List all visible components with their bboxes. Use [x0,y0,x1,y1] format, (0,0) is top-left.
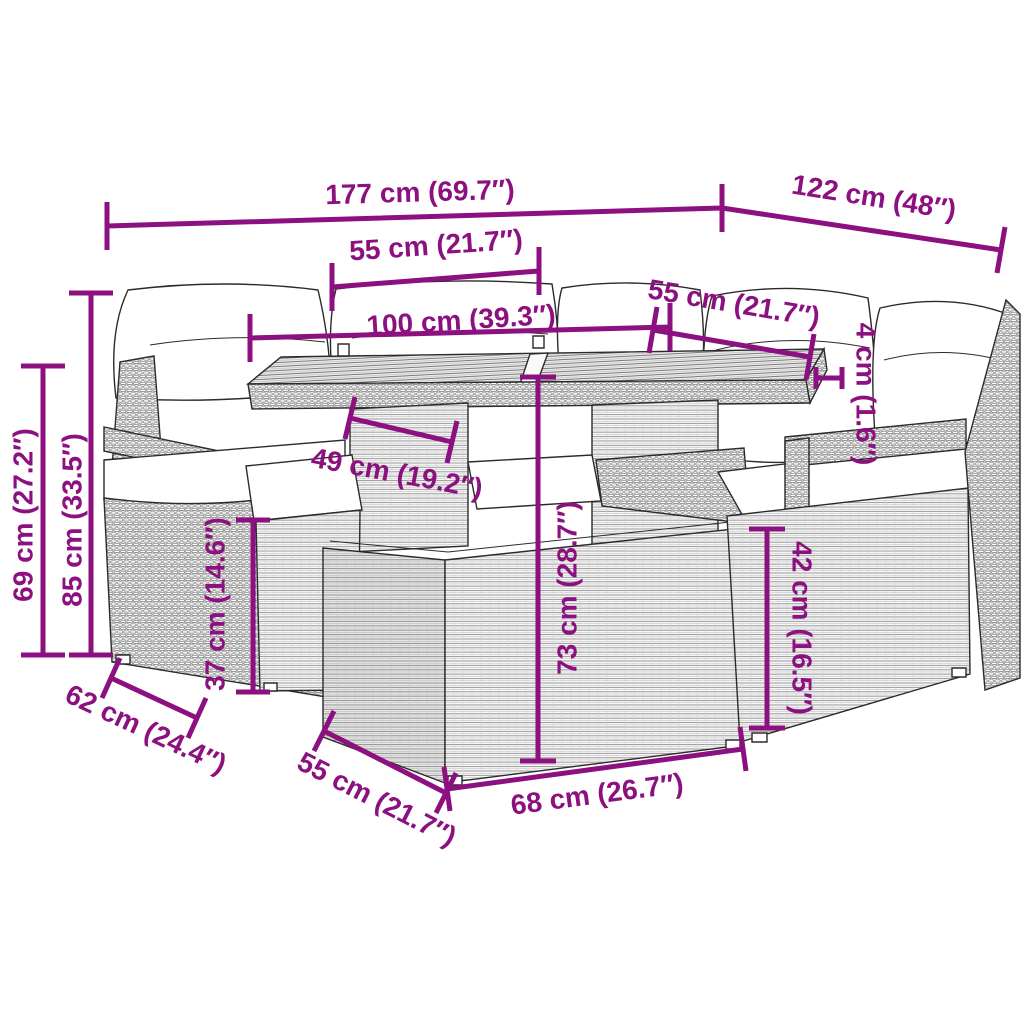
dimension-label-backrest-height: 85 cm (33.5″) [57,433,88,607]
dimension-label-sofa-seat-width: 55 cm (21.7″) [348,223,523,266]
armchair1-body [727,488,970,742]
footstool-front-face [445,528,743,783]
dimension-label-cushion-thickness: 4 cm (1.6″) [851,323,882,466]
armchair1-foot [752,733,767,742]
dimension-diagram: 177 cm (69.7″) 122 cm (48″) 55 cm (21.7″… [0,0,1024,1024]
dimension-label-set-width: 177 cm (69.7″) [325,174,515,211]
dimension-label-armrest-height: 69 cm (27.2″) [8,428,39,602]
dimension-label-stool-height: 37 cm (14.6″) [200,517,231,691]
table-umbrella-plug [533,336,544,348]
bench-seat-cushion [468,455,601,509]
table-umbrella-plug [338,344,349,356]
dimension-label-set-depth: 122 cm (48″) [790,169,959,226]
dimension-diagram-svg: 177 cm (69.7″) 122 cm (48″) 55 cm (21.7″… [0,0,1024,1024]
dimension-label-seat-frame-height: 42 cm (16.5″) [787,541,818,715]
armchair1-foot [952,668,966,677]
dimension-label-table-height: 73 cm (28.7″) [552,501,583,675]
dimension-set-depth-122: 122 cm (48″) [722,169,1005,273]
footstool-left-face-shade [323,548,445,783]
